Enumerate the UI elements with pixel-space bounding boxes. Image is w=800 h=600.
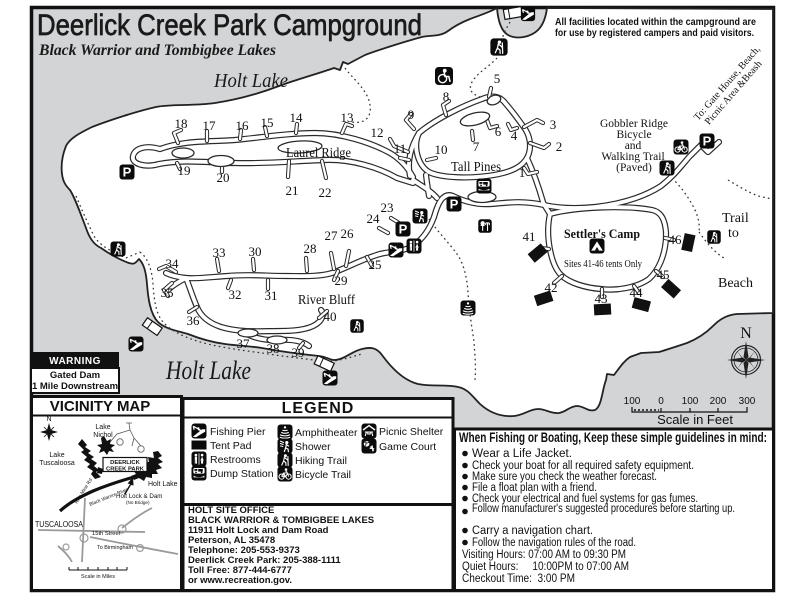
svg-text:100: 100 <box>624 396 641 407</box>
svg-text:25: 25 <box>369 257 382 272</box>
svg-text:200: 200 <box>710 396 727 407</box>
svg-text:27: 27 <box>325 228 339 243</box>
svg-text:Shower: Shower <box>295 441 331 453</box>
svg-text:Holt Lake: Holt Lake <box>165 356 251 385</box>
svg-text:Fishing Pier: Fishing Pier <box>210 426 266 438</box>
svg-text:17: 17 <box>203 118 217 133</box>
svg-text:9: 9 <box>408 107 415 122</box>
svg-text:10: 10 <box>435 142 448 157</box>
svg-text:Deerlick Creek Park Campground: Deerlick Creek Park Campground <box>37 9 422 42</box>
svg-text:Quiet Hours: 10:00PM to 07: Quiet Hours: 10:00PM to 07:00 AM <box>462 561 629 573</box>
svg-text:To Birmingham: To Birmingham <box>97 545 133 551</box>
svg-text:21: 21 <box>286 183 299 198</box>
svg-text:6: 6 <box>495 124 502 139</box>
svg-text:Dump Station: Dump Station <box>210 468 274 480</box>
svg-text:3: 3 <box>550 117 557 132</box>
svg-text:34: 34 <box>166 256 180 271</box>
svg-text:30: 30 <box>249 244 262 259</box>
svg-text:39: 39 <box>292 345 305 360</box>
svg-text:Lake: Lake <box>95 424 110 431</box>
svg-text:Beach: Beach <box>718 276 753 291</box>
svg-text:38: 38 <box>267 341 280 356</box>
svg-text:8: 8 <box>443 89 450 104</box>
svg-text:LEGEND: LEGEND <box>282 400 355 417</box>
svg-text:29: 29 <box>335 273 348 288</box>
svg-text:Carry a navigation chart.: Carry a navigation chart. <box>472 525 593 537</box>
svg-text:All facilities located within: All facilities located within the campgr… <box>555 17 756 28</box>
svg-text:River Bluff: River Bluff <box>298 292 355 307</box>
svg-text:28: 28 <box>304 241 317 256</box>
svg-text:1 Mile Downstream: 1 Mile Downstream <box>32 381 118 392</box>
svg-text:Trail: Trail <box>722 211 749 226</box>
svg-text:41: 41 <box>523 229 536 244</box>
svg-text:Picnic Shelter: Picnic Shelter <box>379 426 444 438</box>
svg-text:Sites 41-46 tents Only: Sites 41-46 tents Only <box>564 259 642 270</box>
svg-text:WARNING: WARNING <box>49 356 101 367</box>
svg-text:Holt Lake: Holt Lake <box>213 70 288 92</box>
svg-text:40: 40 <box>324 309 337 324</box>
svg-text:12: 12 <box>371 125 384 140</box>
svg-text:Bicycle Trail: Bicycle Trail <box>295 469 351 481</box>
svg-text:100: 100 <box>682 396 699 407</box>
svg-text:1: 1 <box>519 165 526 180</box>
svg-text:0: 0 <box>658 396 664 407</box>
svg-text:37: 37 <box>237 336 251 351</box>
svg-text:24: 24 <box>367 211 381 226</box>
svg-text:Tent Pad: Tent Pad <box>210 440 252 452</box>
svg-text:N: N <box>740 325 752 342</box>
svg-text:Scale in Miles: Scale in Miles <box>81 574 115 580</box>
svg-text:7: 7 <box>473 139 480 154</box>
svg-text:Nichol: Nichol <box>93 432 113 439</box>
svg-text:Gated Dam: Gated Dam <box>50 370 100 381</box>
svg-text:33: 33 <box>213 245 226 260</box>
svg-text:5: 5 <box>494 71 501 86</box>
svg-text:Wear a Life Jacket.: Wear a Life Jacket. <box>472 448 572 460</box>
svg-text:Restrooms: Restrooms <box>210 454 261 466</box>
svg-text:18: 18 <box>175 116 188 131</box>
svg-text:14: 14 <box>290 110 304 125</box>
svg-text:36: 36 <box>187 313 201 328</box>
svg-text:Hiking Trail: Hiking Trail <box>295 455 347 467</box>
svg-text:Laurel Ridge: Laurel Ridge <box>286 145 351 160</box>
svg-text:15: 15 <box>261 115 274 130</box>
svg-text:46: 46 <box>669 232 683 247</box>
svg-text:4: 4 <box>511 128 518 143</box>
svg-text:35: 35 <box>161 285 174 300</box>
svg-text:Holt Lake: Holt Lake <box>148 481 178 488</box>
svg-text:13: 13 <box>341 110 354 125</box>
svg-text:CREEK PARK: CREEK PARK <box>106 467 145 473</box>
svg-text:N: N <box>46 416 51 423</box>
svg-text:(Paved): (Paved) <box>616 162 652 174</box>
svg-text:or www.recreation.gov.: or www.recreation.gov. <box>188 575 292 586</box>
svg-text:for use by registered campers: for use by registered campers and paid v… <box>555 28 754 39</box>
svg-text:Follow the navigation rules of: Follow the navigation rules of the road. <box>472 537 636 549</box>
svg-text:15th Street: 15th Street <box>92 531 121 537</box>
svg-text:Amphitheater: Amphitheater <box>295 427 358 439</box>
svg-text:(No Bridge): (No Bridge) <box>126 500 150 505</box>
svg-text:Black Warrior and Tombigbee La: Black Warrior and Tombigbee Lakes <box>38 42 276 59</box>
svg-text:Game Court: Game Court <box>379 441 436 453</box>
svg-text:Visiting Hours: 07:00 AM to 09: Visiting Hours: 07:00 AM to 09:30 PM <box>462 549 626 561</box>
svg-text:Tall Pines: Tall Pines <box>451 159 501 174</box>
svg-text:Follow manufacturer's suggeste: Follow manufacturer's suggested procedur… <box>472 503 735 515</box>
svg-text:DEERLICK: DEERLICK <box>110 460 140 466</box>
svg-text:Tuscaloosa: Tuscaloosa <box>39 460 75 467</box>
svg-text:300: 300 <box>739 396 756 407</box>
svg-text:When Fishing or Boating, Keep: When Fishing or Boating, Keep these simp… <box>459 430 767 445</box>
svg-text:Lake: Lake <box>49 452 64 459</box>
svg-text:16: 16 <box>236 118 250 133</box>
svg-text:19: 19 <box>178 163 191 178</box>
svg-text:23: 23 <box>381 200 394 215</box>
svg-text:TUSCALOOSA: TUSCALOOSA <box>35 520 84 529</box>
svg-text:Checkout Time: 3:00 PM: Checkout Time: 3:00 PM <box>462 573 575 585</box>
svg-text:20: 20 <box>217 170 230 185</box>
svg-text:26: 26 <box>341 226 355 241</box>
svg-text:45: 45 <box>657 267 670 282</box>
svg-text:31: 31 <box>265 288 278 303</box>
svg-text:to: to <box>728 226 739 241</box>
svg-text:11: 11 <box>394 141 407 156</box>
svg-text:32: 32 <box>229 287 242 302</box>
svg-text:Scale in Feet: Scale in Feet <box>657 412 733 427</box>
svg-text:43: 43 <box>595 291 608 306</box>
svg-text:VICINITY MAP: VICINITY MAP <box>50 398 151 415</box>
svg-text:2: 2 <box>556 139 563 154</box>
svg-text:22: 22 <box>319 185 332 200</box>
